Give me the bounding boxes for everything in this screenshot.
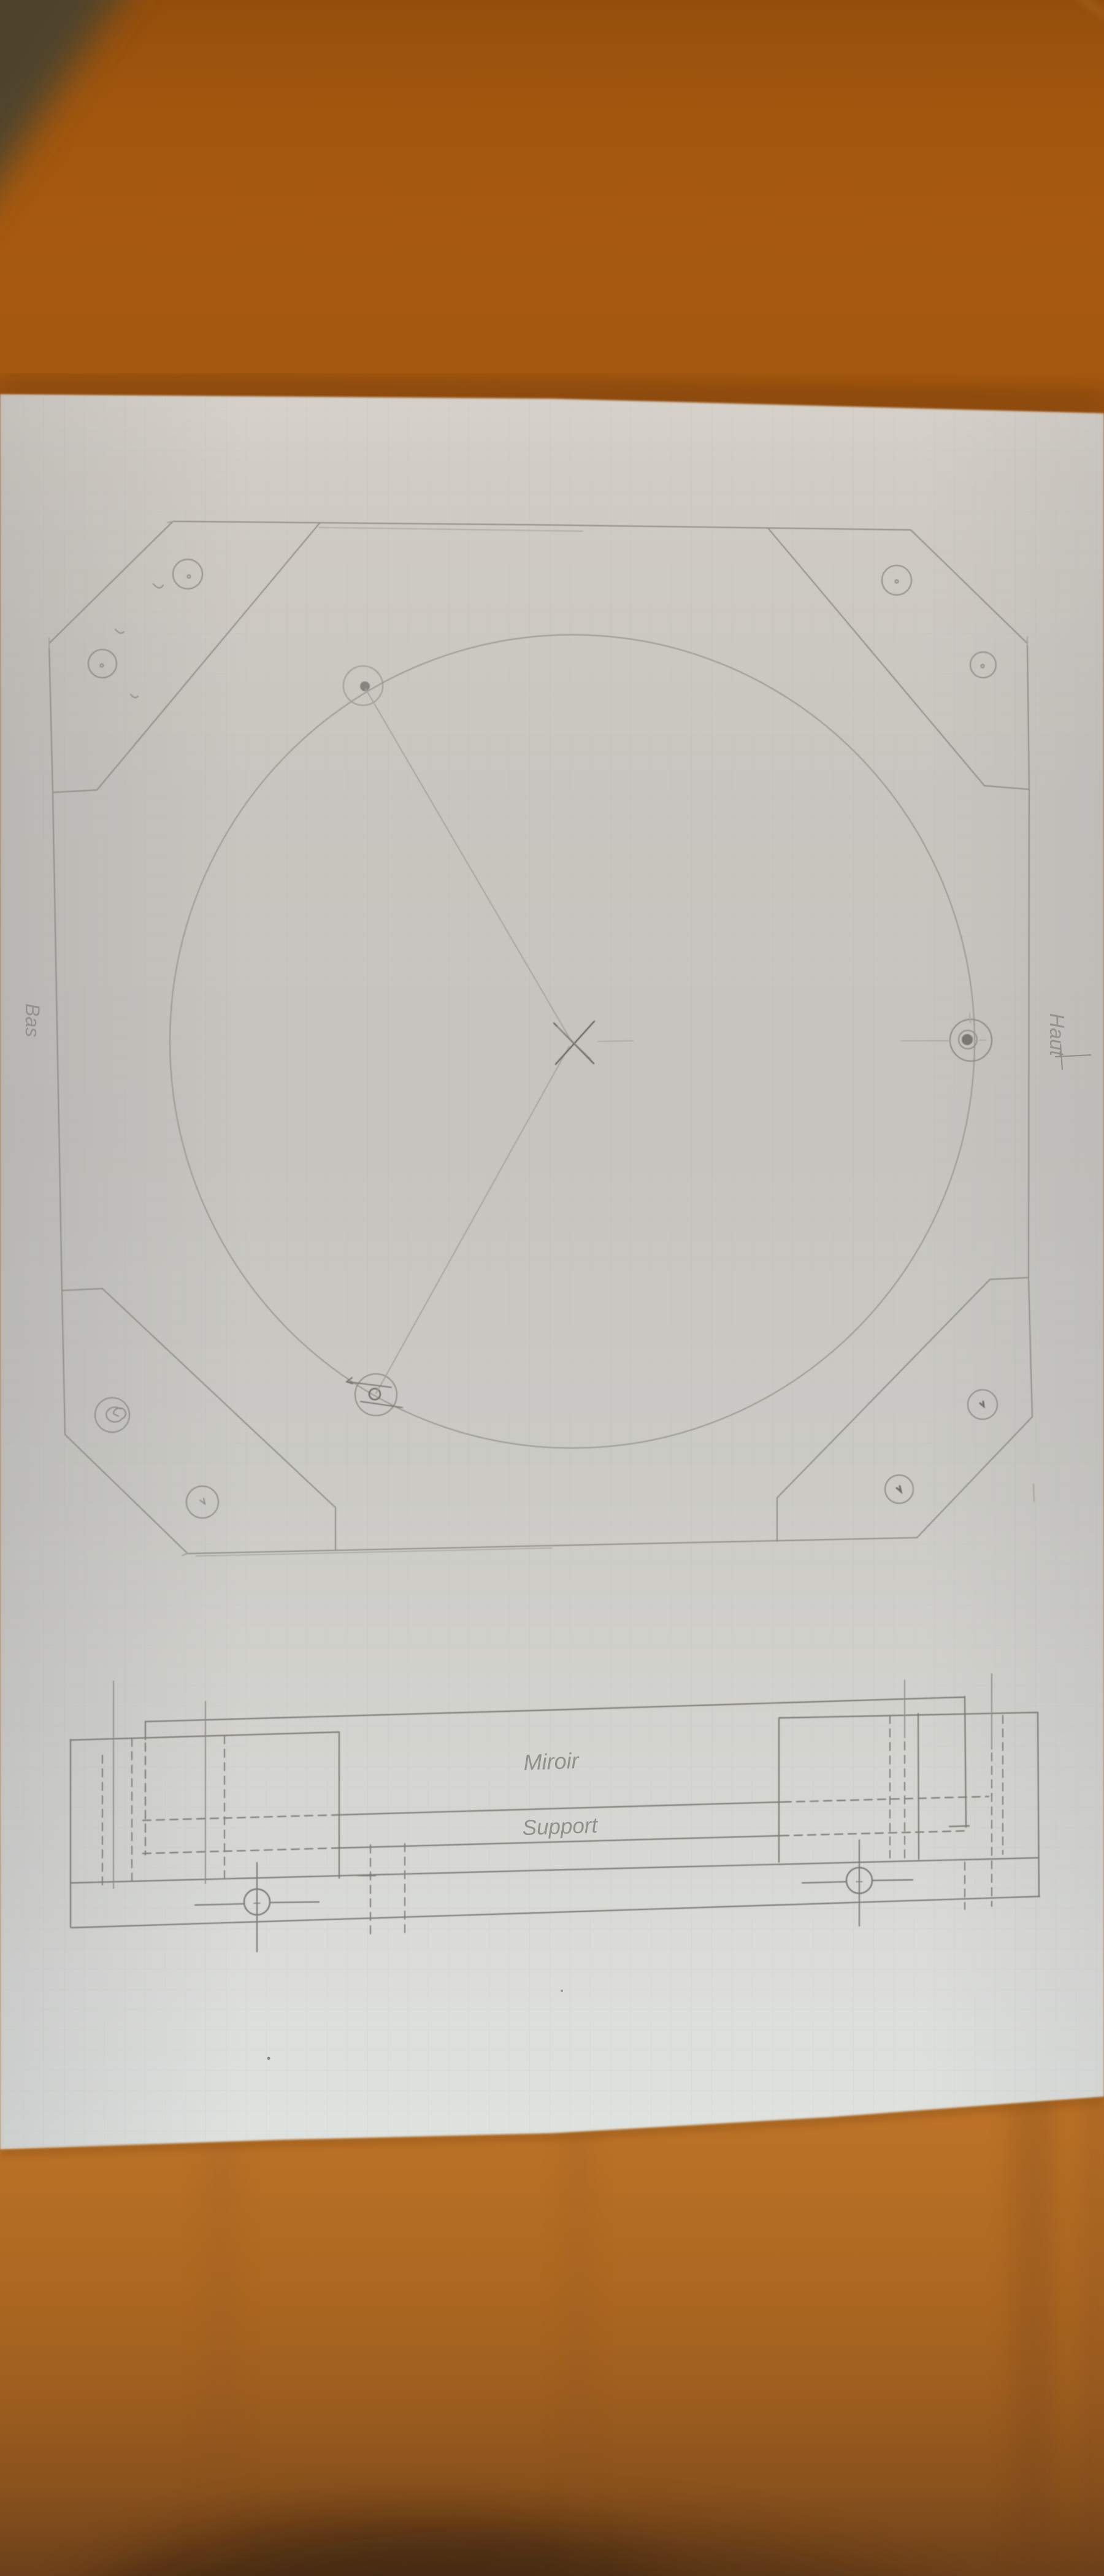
svg-text:Bas: Bas: [21, 1003, 44, 1037]
svg-text:Support: Support: [522, 1814, 599, 1840]
svg-text:Miroir: Miroir: [523, 1748, 580, 1775]
svg-text:Haut: Haut: [1046, 1013, 1068, 1057]
